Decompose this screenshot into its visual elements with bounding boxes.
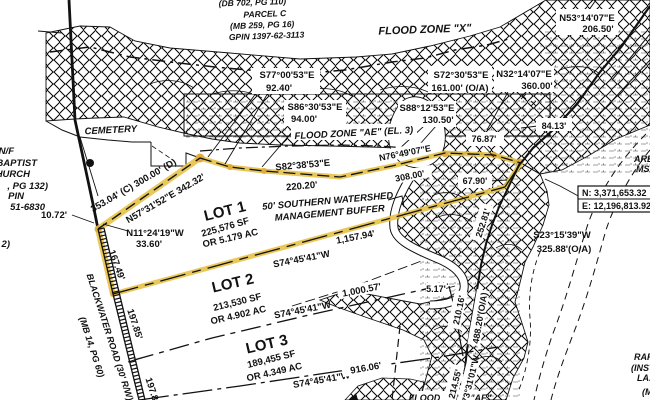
svg-text:S86°30'53"E: S86°30'53"E (288, 102, 343, 113)
svg-text:(M: (M (642, 387, 650, 397)
svg-text:S72°30'53"E: S72°30'53"E (434, 70, 489, 81)
svg-text:MSA: MSA (636, 164, 650, 174)
svg-text:S77°00'53"E: S77°00'53"E (260, 70, 315, 81)
svg-text:67.90': 67.90' (463, 176, 488, 186)
svg-text:BAPTIST: BAPTIST (0, 158, 38, 169)
svg-text:RAP: RAP (634, 352, 650, 362)
svg-text:360.00': 360.00' (521, 81, 552, 92)
svg-text:5.17': 5.17' (426, 284, 446, 294)
svg-text:(INST: (INST (631, 363, 650, 373)
svg-text:33.60': 33.60' (136, 239, 162, 250)
svg-text:130.50': 130.50' (422, 115, 453, 126)
svg-text:325.88'(O/A): 325.88'(O/A) (537, 244, 592, 255)
svg-text:S88°12'53"E: S88°12'53"E (400, 103, 455, 114)
svg-text:N32°14'07"E: N32°14'07"E (496, 69, 551, 80)
svg-text:161.00' (O/A): 161.00' (O/A) (431, 83, 488, 94)
svg-text:N11°24'19"W: N11°24'19"W (126, 228, 184, 239)
svg-text:84.13': 84.13' (542, 121, 567, 131)
svg-text:CHURCH: CHURCH (0, 169, 31, 180)
svg-text:S23°15'39"W: S23°15'39"W (533, 230, 591, 241)
svg-text:E: 12,196,813.92: E: 12,196,813.92 (582, 201, 650, 211)
svg-text:PARCEL C: PARCEL C (243, 8, 287, 20)
svg-text:76.87': 76.87' (472, 134, 497, 144)
svg-text:AREA: AREA (633, 154, 650, 164)
svg-text:94.00': 94.00' (291, 114, 317, 125)
svg-text:LA.: LA. (637, 373, 650, 383)
svg-text:206.50': 206.50' (582, 24, 613, 35)
svg-text:PIN: PIN (8, 191, 25, 202)
svg-text:N53°14'07"E: N53°14'07"E (559, 13, 614, 24)
svg-text:2): 2) (1, 239, 10, 250)
svg-text:N/F: N/F (0, 146, 14, 157)
svg-text:51-6830: 51-6830 (10, 202, 46, 213)
svg-text:92.40': 92.40' (266, 83, 292, 94)
svg-text:N: 3,371,653.32: N: 3,371,653.32 (582, 188, 647, 198)
